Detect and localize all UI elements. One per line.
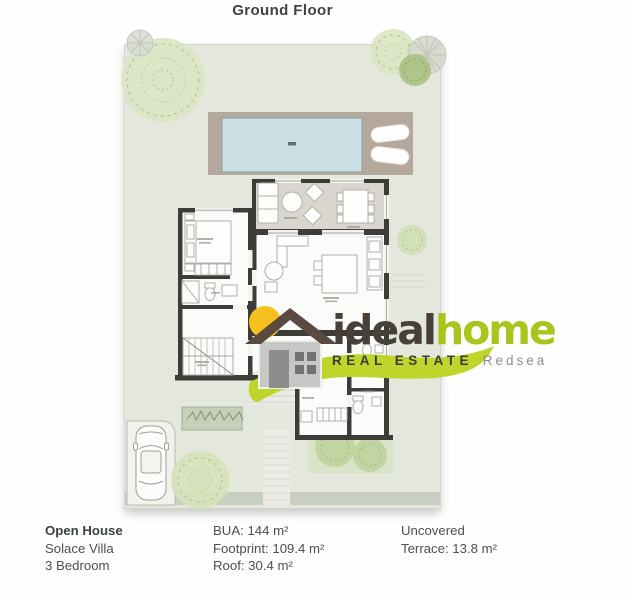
floor-plan-drawing xyxy=(125,45,440,508)
door xyxy=(269,350,289,388)
terrace-label: Uncovered xyxy=(401,522,497,540)
terrace-value: Terrace: 13.8 m² xyxy=(401,540,497,558)
tree xyxy=(127,30,153,56)
sink xyxy=(222,285,237,296)
tree xyxy=(171,451,229,509)
page-title: Ground Floor xyxy=(125,2,440,19)
bush xyxy=(397,225,427,255)
outdoor-round-table xyxy=(282,192,302,212)
planted-bed xyxy=(182,407,243,430)
counter xyxy=(317,408,347,421)
logo-region: Redsea xyxy=(483,353,548,368)
logo-text: idealhome REAL ESTATE Redsea xyxy=(332,310,555,368)
listing-villa: Solace Villa xyxy=(45,540,123,558)
stairs xyxy=(183,338,233,375)
washer xyxy=(301,411,312,422)
tree xyxy=(399,54,431,86)
listing-heading: Open House xyxy=(45,522,123,540)
nightstand xyxy=(185,264,194,271)
house-icon xyxy=(238,296,346,396)
bedroom xyxy=(185,214,231,275)
garden-steps xyxy=(393,275,425,287)
areas-column: BUA: 144 m² Footprint: 109.4 m² Roof: 30… xyxy=(213,522,324,575)
roof-value: Roof: 30.4 m² xyxy=(213,557,324,575)
terrace-column: Uncovered Terrace: 13.8 m² xyxy=(401,522,497,557)
car-top-view xyxy=(134,426,169,500)
outdoor-dining-table xyxy=(343,190,368,223)
toilet xyxy=(205,288,215,301)
site-plot xyxy=(125,45,440,508)
pool-drain xyxy=(288,142,296,146)
brand-primary: ideal xyxy=(332,306,435,354)
footprint-value: Footprint: 109.4 m² xyxy=(213,540,324,558)
logo-tagline: REAL ESTATE xyxy=(332,353,473,368)
sofa xyxy=(277,236,308,246)
floor-plan-page: Ground Floor xyxy=(0,0,632,600)
coffee-table xyxy=(265,262,283,280)
nightstand xyxy=(185,214,194,220)
wardrobe xyxy=(195,264,231,275)
kitchen-island xyxy=(322,255,357,293)
listing-column: Open House Solace Villa 3 Bedroom xyxy=(45,522,123,575)
armchair xyxy=(265,282,277,292)
pool-deck xyxy=(208,112,413,175)
outdoor-lounge xyxy=(258,183,278,223)
bua-value: BUA: 144 m² xyxy=(213,522,324,540)
listing-bedrooms: 3 Bedroom xyxy=(45,557,123,575)
logo-watermark: idealhome REAL ESTATE Redsea xyxy=(238,296,548,406)
entry-path xyxy=(263,430,290,505)
brand-secondary: home xyxy=(435,306,555,354)
